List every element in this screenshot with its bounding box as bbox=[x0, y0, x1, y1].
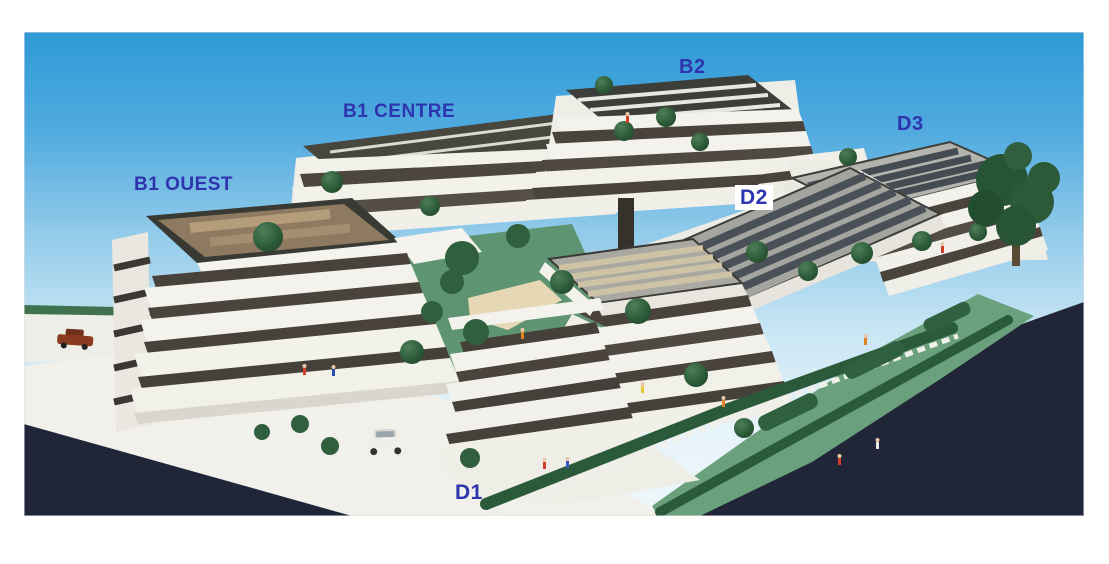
figurine bbox=[641, 382, 645, 393]
bush bbox=[460, 448, 480, 468]
figurine bbox=[543, 458, 547, 469]
ball-tree bbox=[595, 76, 613, 94]
courtyard-tree bbox=[463, 319, 489, 345]
ball-tree bbox=[851, 242, 873, 264]
figurine bbox=[332, 365, 336, 376]
ball-tree bbox=[625, 298, 651, 324]
courtyard-tree bbox=[440, 270, 464, 294]
screenshot-stage: B1 OUEST B1 CENTRE B2 D2 D3 D1 bbox=[0, 0, 1109, 564]
ball-tree bbox=[400, 340, 424, 364]
figurine bbox=[838, 454, 842, 465]
ball-tree bbox=[691, 133, 709, 151]
figurine bbox=[722, 396, 726, 407]
label-b1-ouest: B1 OUEST bbox=[134, 175, 233, 196]
figurine bbox=[303, 364, 307, 375]
figurine bbox=[941, 242, 945, 253]
courtyard-tree bbox=[421, 301, 443, 323]
tree-canopy bbox=[1028, 162, 1060, 194]
ball-tree bbox=[839, 148, 857, 166]
label-d2: D2 bbox=[735, 185, 773, 210]
tree-canopy bbox=[1004, 142, 1032, 170]
ball-tree bbox=[321, 171, 343, 193]
photo-area bbox=[24, 32, 1084, 516]
courtyard-tree bbox=[506, 224, 530, 248]
label-d3: D3 bbox=[897, 113, 924, 135]
ball-tree bbox=[656, 107, 676, 127]
label-d1: D1 bbox=[455, 481, 483, 504]
ball-tree bbox=[614, 121, 634, 141]
ball-tree bbox=[550, 270, 574, 294]
courtyard-tree bbox=[445, 241, 479, 275]
figurine bbox=[864, 334, 868, 345]
bush bbox=[321, 437, 339, 455]
ball-tree bbox=[734, 418, 754, 438]
label-b2: B2 bbox=[679, 56, 706, 78]
ball-tree bbox=[253, 222, 283, 252]
bush bbox=[254, 424, 270, 440]
tree-canopy bbox=[996, 206, 1036, 246]
bush bbox=[291, 415, 309, 433]
ball-tree bbox=[798, 261, 818, 281]
figurine bbox=[876, 438, 880, 449]
figurine bbox=[566, 457, 570, 468]
ball-tree bbox=[420, 196, 440, 216]
ball-tree bbox=[746, 241, 768, 263]
model-photo bbox=[0, 0, 1109, 564]
figurine bbox=[626, 112, 630, 123]
figurine bbox=[521, 328, 525, 339]
ball-tree bbox=[912, 231, 932, 251]
ball-tree bbox=[684, 363, 708, 387]
label-b1-centre: B1 CENTRE bbox=[343, 102, 455, 123]
